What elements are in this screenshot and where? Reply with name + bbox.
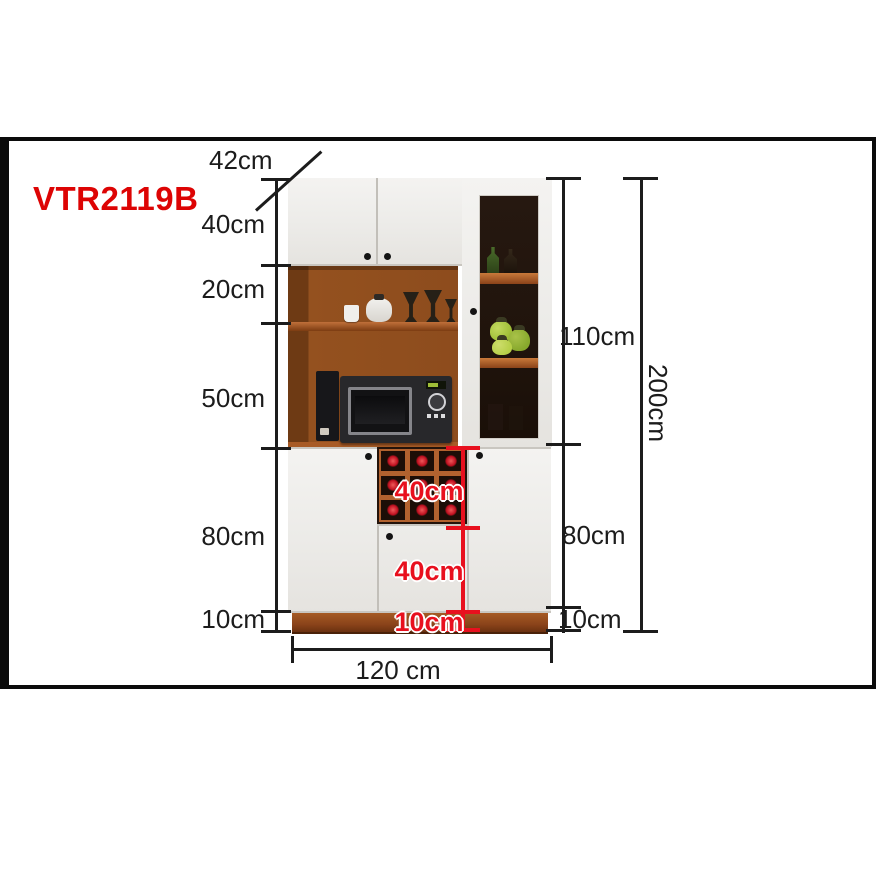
glass-cabinet-shelf [480, 358, 538, 368]
total-height-top-cap [623, 177, 658, 180]
lower-cabinet-seam-right [467, 447, 469, 613]
dark-jar [488, 404, 503, 430]
upper-right-door-knob [384, 253, 391, 260]
dark-jar [509, 406, 523, 430]
total-height-bottom-cap [623, 630, 658, 633]
width-right-tick [550, 636, 553, 663]
dim-label-width: 120 cm [346, 657, 450, 683]
wine-bottle-cell [410, 451, 434, 471]
dim-label-50cm: 50cm [180, 385, 265, 411]
left-tick [261, 447, 291, 450]
right-dimension-line [562, 177, 565, 633]
dim-label-110cm: 110cm [559, 323, 635, 349]
right-tick [546, 177, 581, 180]
microwave [340, 376, 452, 443]
microwave-buttons [427, 414, 445, 418]
dim-label-200cm: 200cm [645, 361, 671, 445]
left-tick [261, 264, 291, 267]
lower-left-door-knob [365, 453, 372, 460]
left-tick [261, 610, 291, 613]
wine-bottle-cell [439, 451, 463, 471]
green-kettle [492, 339, 512, 355]
dim-label-right-80cm: 80cm [562, 522, 626, 548]
glass-display-cabinet [462, 178, 552, 447]
red-tick [446, 446, 480, 450]
upper-cabinet-door-seam [376, 178, 378, 266]
product-model-label: VTR2119B [33, 180, 198, 218]
red-dim-label-10cm: 10cm [387, 609, 471, 636]
left-tick [261, 630, 291, 633]
microwave-knob [428, 393, 446, 411]
bottle [504, 249, 517, 273]
glass-door-knob [470, 308, 477, 315]
white-cup [344, 305, 359, 322]
glass-pane [479, 195, 539, 439]
drawer-knob [386, 533, 393, 540]
width-dimension-line [292, 648, 552, 651]
glass-cabinet-shelf [480, 273, 538, 284]
dim-label-20cm: 20cm [180, 276, 265, 302]
red-dim-label-40cm-lower: 40cm [387, 558, 471, 585]
bottle [487, 247, 499, 273]
width-left-tick [291, 636, 294, 663]
dim-label-40cm: 40cm [180, 211, 265, 237]
right-tick [546, 443, 581, 446]
left-dimension-line [275, 178, 278, 633]
wine-bottle-cell [381, 451, 405, 471]
coffee-machine [316, 371, 339, 441]
upper-left-door-knob [364, 253, 371, 260]
red-dimension-line [461, 447, 465, 632]
teapot [366, 298, 392, 322]
shelf-board [288, 322, 458, 331]
microwave-window [355, 396, 405, 424]
dim-label-80cm: 80cm [180, 523, 265, 549]
dim-label-10cm: 10cm [180, 606, 265, 632]
dim-label-depth: 42cm [209, 147, 273, 173]
upper-cabinet [288, 178, 462, 266]
dimension-diagram: VTR2119B [0, 0, 884, 884]
red-tick [446, 526, 480, 530]
microwave-display [426, 381, 446, 389]
shelf-top-shadow [288, 266, 458, 270]
lower-right-door-knob [476, 452, 483, 459]
left-tick [261, 322, 291, 325]
red-dim-label-40cm-upper: 40cm [387, 478, 471, 505]
dim-label-right-10cm: 10cm [558, 606, 622, 632]
microwave-door [348, 387, 412, 435]
